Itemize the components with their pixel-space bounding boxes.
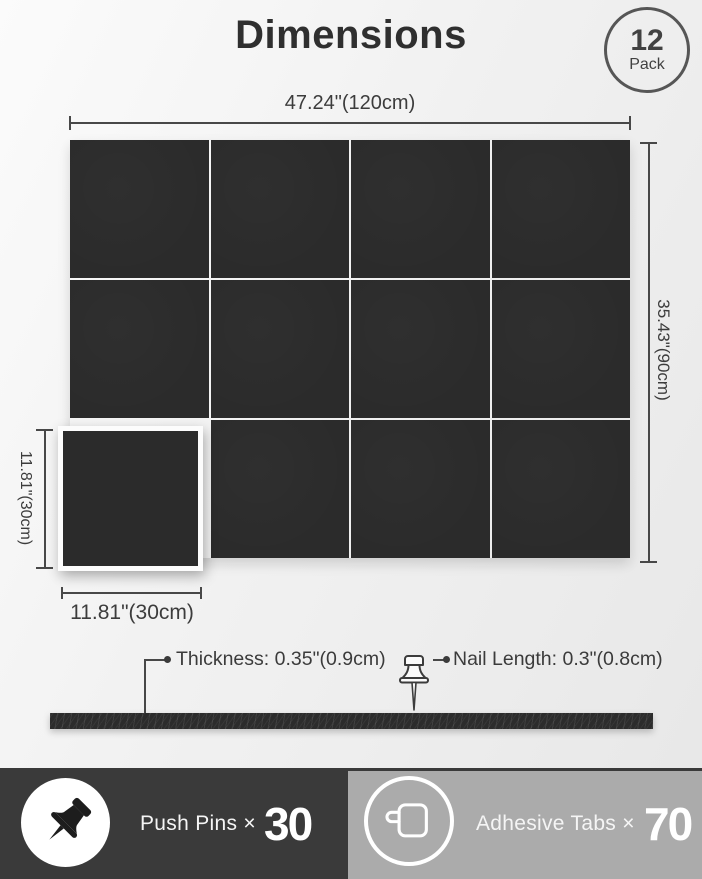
pack-count-unit: Pack <box>629 56 665 74</box>
adhesive-tab-icon <box>378 790 440 852</box>
acoustic-panel <box>70 140 209 278</box>
total-width-label: 47.24"(120cm) <box>70 92 630 115</box>
total-height-label: 35.43"(90cm) <box>653 299 673 400</box>
single-acoustic-panel <box>58 426 203 571</box>
push-pin-diagram-icon <box>398 655 430 713</box>
thickness-leader-line <box>144 660 146 713</box>
adhesive-tabs-label: Adhesive Tabs × <box>476 768 635 879</box>
acoustic-panel <box>70 280 209 418</box>
push-pins-count: 30 <box>264 768 311 879</box>
thickness-leader-dot <box>164 656 171 663</box>
page-title: Dimensions <box>0 13 702 58</box>
acoustic-panel <box>492 280 631 418</box>
acoustic-panel <box>211 140 350 278</box>
push-pins-label: Push Pins × <box>140 768 256 879</box>
panel-width-dimension-line <box>62 592 202 594</box>
product-dimensions-infographic: Dimensions 12 Pack 47.24"(120cm) 35.43"(… <box>0 0 702 879</box>
panel-height-dimension-line <box>44 430 46 569</box>
panel-side-view <box>50 713 653 729</box>
nail-length-leader-dot <box>443 656 450 663</box>
dimension-tick <box>69 116 71 130</box>
acoustic-panel <box>211 420 350 558</box>
nail-length-label: Nail Length: 0.3"(0.8cm) <box>453 648 663 671</box>
thickness-label: Thickness: 0.35"(0.9cm) <box>176 648 386 671</box>
accessories-bar: Push Pins × 30 Adhesive Tabs × 70 <box>0 768 702 879</box>
acoustic-panel <box>492 420 631 558</box>
acoustic-panel <box>351 280 490 418</box>
dimension-tick <box>200 587 202 599</box>
total-width-dimension-line <box>70 122 630 124</box>
dimension-tick <box>640 142 657 144</box>
dimension-tick <box>36 567 53 569</box>
acoustic-panel <box>211 280 350 418</box>
pack-count: 12 <box>630 26 663 56</box>
dimension-tick <box>640 561 657 563</box>
total-height-dimension-line <box>648 143 650 563</box>
acoustic-panel <box>351 420 490 558</box>
acoustic-panel <box>351 140 490 278</box>
adhesive-tab-icon-circle <box>364 776 454 866</box>
dimension-tick <box>629 116 631 130</box>
pack-count-badge: 12 Pack <box>604 7 690 93</box>
panel-height-label: 11.81"(30cm) <box>16 451 34 545</box>
push-pin-icon-circle <box>21 778 110 867</box>
acoustic-panel <box>492 140 631 278</box>
dimension-tick <box>61 587 63 599</box>
adhesive-tabs-count: 70 <box>644 768 691 879</box>
dimension-tick <box>36 429 53 431</box>
panel-width-label: 11.81"(30cm) <box>40 601 224 625</box>
push-pin-icon <box>37 794 95 852</box>
